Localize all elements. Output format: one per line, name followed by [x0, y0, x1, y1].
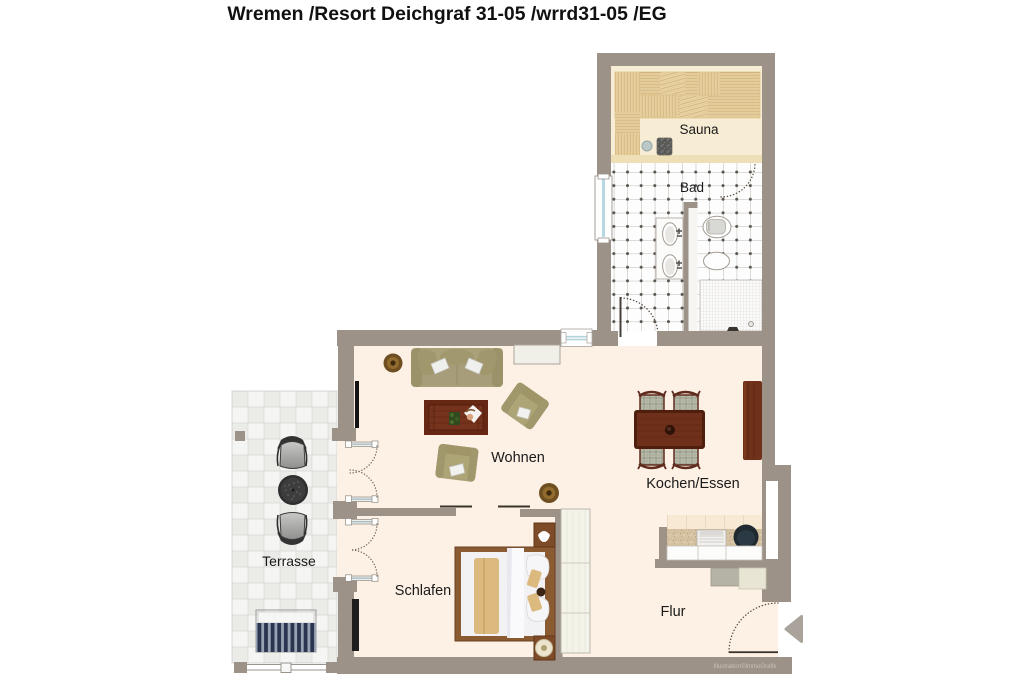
svg-text:Bad: Bad — [680, 180, 704, 195]
svg-text:Schlafen: Schlafen — [395, 583, 451, 599]
svg-text:Flur: Flur — [661, 604, 686, 620]
svg-text:Wremen /Resort Deichgraf 31-05: Wremen /Resort Deichgraf 31-05 /wrrd31-0… — [227, 3, 666, 25]
svg-text:Wohnen: Wohnen — [491, 450, 545, 466]
svg-text:Sauna: Sauna — [679, 122, 719, 137]
svg-text:Illustration©ImmoGrafik: Illustration©ImmoGrafik — [714, 663, 778, 670]
svg-text:Terrasse: Terrasse — [262, 553, 316, 569]
svg-text:Kochen/Essen: Kochen/Essen — [646, 476, 740, 492]
